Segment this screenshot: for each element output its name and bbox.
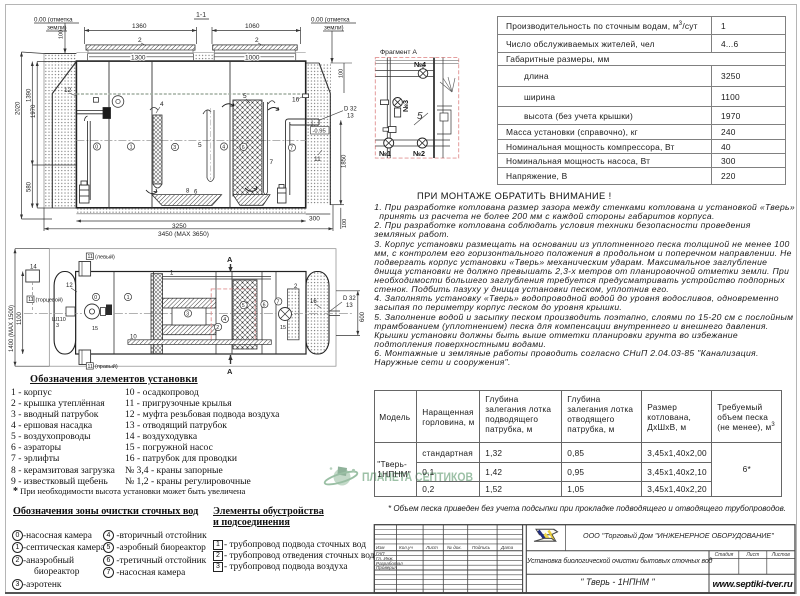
svg-text:1360: 1360 bbox=[132, 23, 147, 30]
svg-text:(левый): (левый) bbox=[95, 254, 115, 261]
svg-text:№3: №3 bbox=[401, 100, 410, 112]
svg-text:12: 12 bbox=[66, 283, 73, 289]
svg-text:4: 4 bbox=[160, 101, 164, 108]
svg-text:5: 5 bbox=[198, 142, 202, 149]
svg-text:1000: 1000 bbox=[245, 54, 260, 61]
svg-text:7: 7 bbox=[277, 300, 280, 306]
svg-text:-0.95: -0.95 bbox=[313, 129, 326, 135]
svg-text:0.00 (отметка: 0.00 (отметка bbox=[311, 17, 350, 24]
svg-text:1400 (MAX 1500): 1400 (MAX 1500) bbox=[9, 305, 15, 352]
svg-text:Фрагмент А: Фрагмент А bbox=[380, 49, 417, 56]
svg-text:580: 580 bbox=[27, 181, 33, 192]
svg-text:1-1: 1-1 bbox=[196, 12, 206, 19]
svg-text:100: 100 bbox=[59, 30, 65, 39]
svg-text:А: А bbox=[227, 367, 233, 376]
svg-text:5: 5 bbox=[243, 93, 247, 100]
svg-text:земли): земли) bbox=[324, 25, 344, 32]
svg-text:11: 11 bbox=[88, 254, 93, 260]
svg-text:5: 5 bbox=[417, 111, 423, 122]
svg-text:1100: 1100 bbox=[17, 311, 23, 325]
svg-text:№2: №2 bbox=[413, 149, 425, 158]
svg-text:2: 2 bbox=[216, 325, 219, 331]
svg-text:100: 100 bbox=[342, 219, 348, 228]
svg-text:14: 14 bbox=[30, 265, 37, 271]
svg-text:13: 13 bbox=[346, 303, 353, 309]
svg-text:4: 4 bbox=[222, 145, 225, 151]
svg-text:11: 11 bbox=[314, 156, 321, 163]
svg-text:№1: №1 bbox=[379, 149, 391, 158]
svg-text:7: 7 bbox=[290, 146, 293, 152]
svg-text:16: 16 bbox=[310, 299, 317, 305]
svg-text:(торцевой): (торцевой) bbox=[36, 297, 64, 304]
svg-text:15: 15 bbox=[92, 326, 98, 332]
svg-text:1300: 1300 bbox=[131, 54, 146, 61]
svg-text:3: 3 bbox=[173, 145, 176, 151]
svg-text:0: 0 bbox=[94, 295, 97, 301]
svg-text:0: 0 bbox=[95, 145, 98, 151]
svg-text:D 32: D 32 bbox=[343, 296, 356, 302]
svg-text:А: А bbox=[227, 255, 233, 264]
svg-text:15: 15 bbox=[280, 325, 286, 331]
svg-text:1850: 1850 bbox=[342, 154, 348, 168]
svg-text:600: 600 bbox=[360, 311, 366, 322]
svg-text:1: 1 bbox=[127, 295, 130, 301]
svg-text:6: 6 bbox=[263, 302, 266, 308]
svg-text:11: 11 bbox=[88, 364, 93, 370]
svg-text:1060: 1060 bbox=[245, 23, 260, 30]
svg-text:8: 8 bbox=[186, 189, 190, 195]
svg-text:13: 13 bbox=[347, 114, 354, 120]
svg-text:D 32: D 32 bbox=[344, 107, 357, 113]
svg-text:0.00 (отметка: 0.00 (отметка bbox=[34, 17, 73, 24]
svg-text:16: 16 bbox=[292, 97, 300, 104]
svg-text:10: 10 bbox=[130, 335, 137, 341]
svg-text:300: 300 bbox=[309, 216, 320, 223]
svg-text:1970: 1970 bbox=[31, 104, 37, 118]
svg-text:6: 6 bbox=[242, 145, 245, 151]
svg-text:12: 12 bbox=[64, 87, 72, 94]
svg-text:1390: 1390 bbox=[27, 88, 33, 102]
svg-text:3: 3 bbox=[56, 323, 59, 329]
svg-text:4: 4 bbox=[223, 317, 226, 323]
svg-text:№4: №4 bbox=[414, 60, 426, 69]
svg-text:100: 100 bbox=[339, 69, 345, 78]
svg-text:1: 1 bbox=[130, 145, 133, 151]
svg-text:3450 (MAX 3650): 3450 (MAX 3650) bbox=[158, 231, 209, 238]
svg-text:2020: 2020 bbox=[16, 101, 22, 115]
svg-text:3: 3 bbox=[186, 312, 189, 318]
svg-text:7: 7 bbox=[270, 159, 274, 166]
svg-text:(правый): (правый) bbox=[95, 363, 118, 370]
svg-text:5: 5 bbox=[242, 303, 245, 309]
